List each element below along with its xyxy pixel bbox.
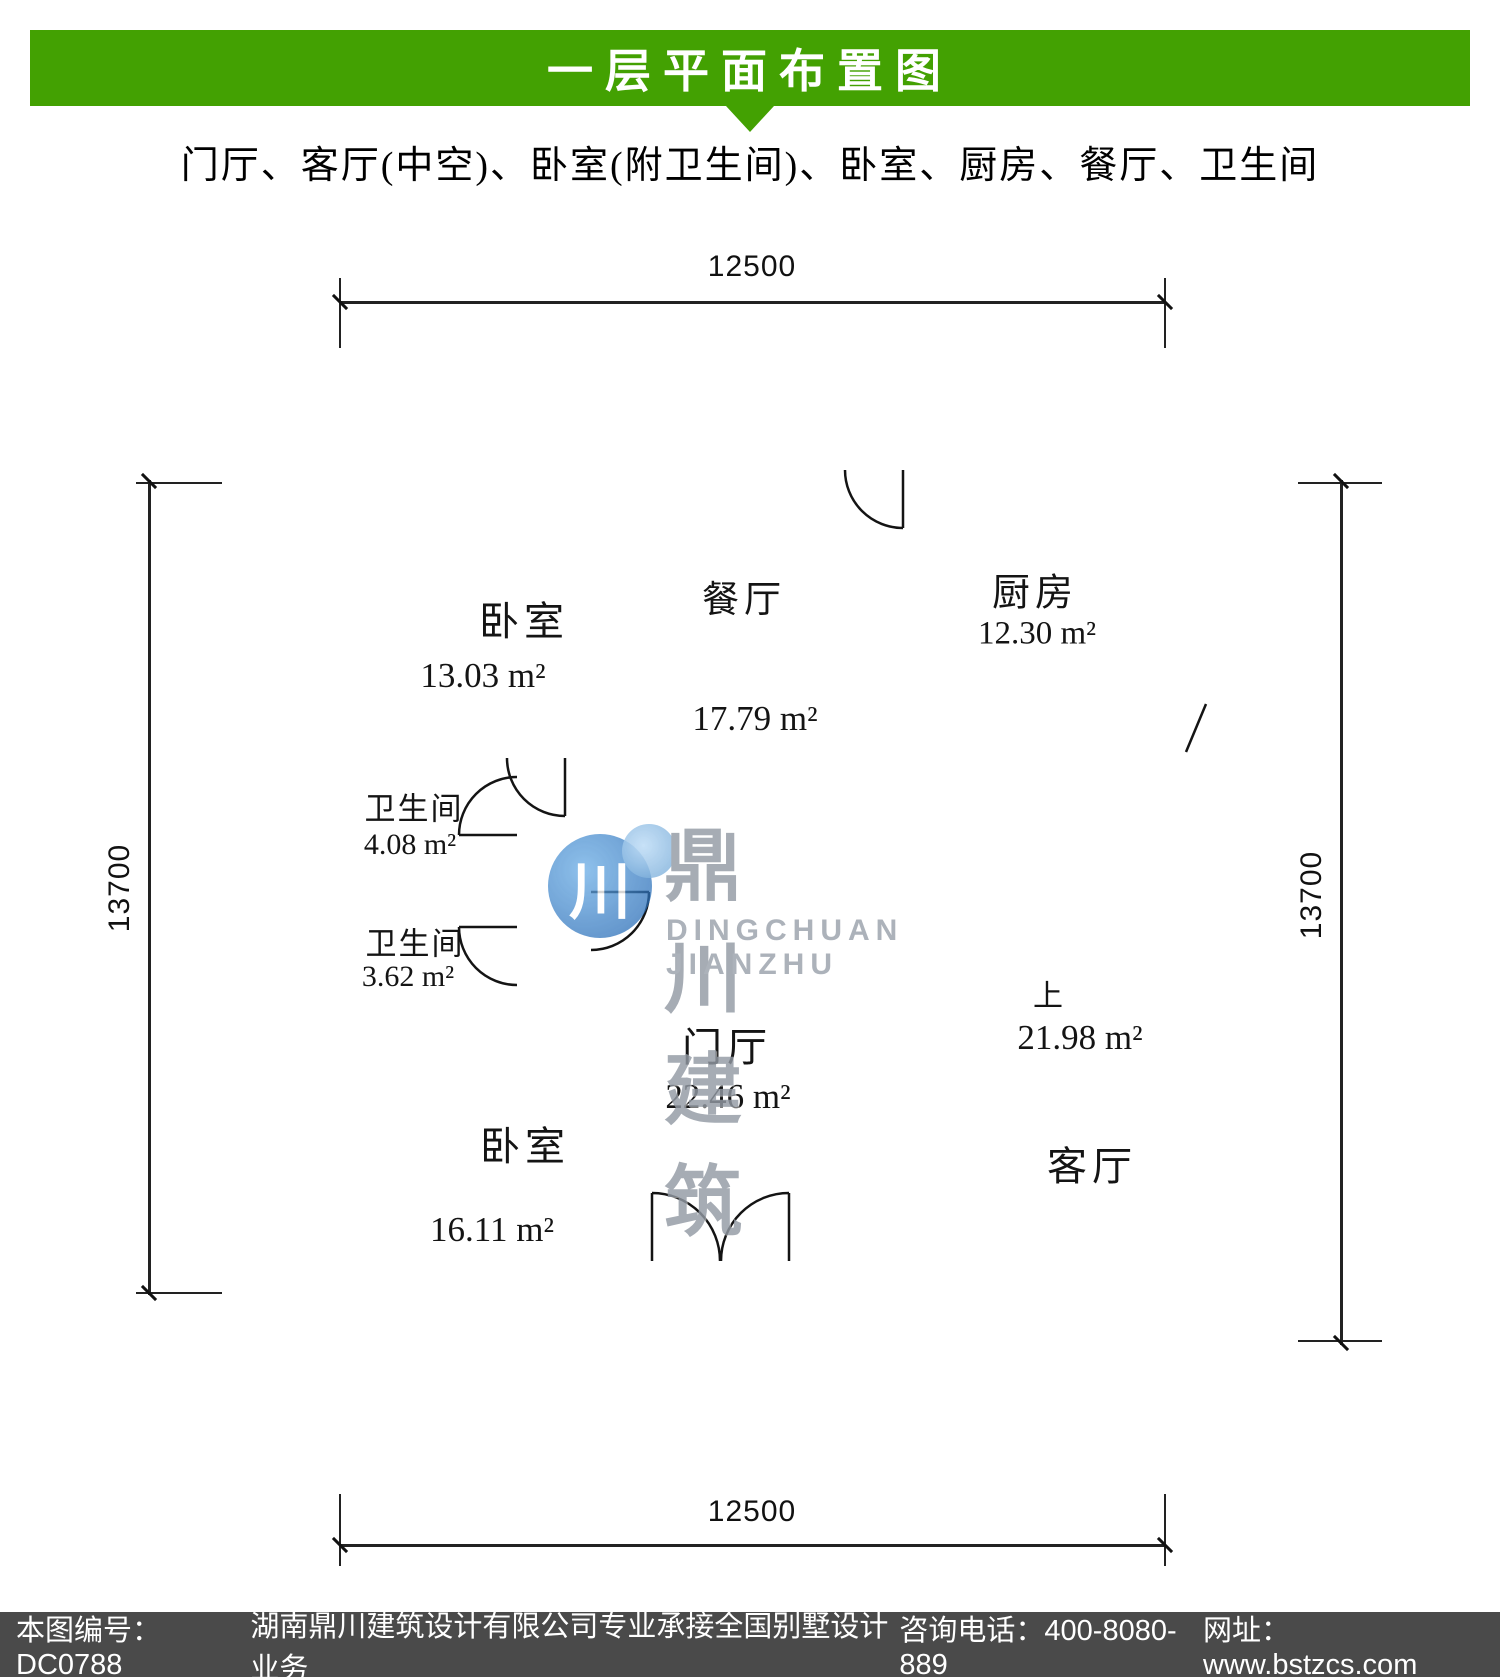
watermark-en-text: DINGCHUAN JIANZHU — [666, 914, 903, 982]
dim-left-value: 13700 — [103, 844, 137, 932]
bath2-area: 3.62 m² — [362, 960, 454, 994]
bedroom1-area: 13.03 m² — [420, 656, 545, 696]
dim-bottom-value: 12500 — [708, 1495, 796, 1529]
footer-phone: 咨询电话：400-8080-889 — [899, 1607, 1203, 1677]
floor-plan-page: 一层平面布置图 门厅、客厅(中空)、卧室(附卫生间)、卧室、厨房、餐厅、卫生间 … — [0, 0, 1500, 1677]
sparkle-icon: ✦ — [538, 826, 555, 851]
dim-ext — [1164, 1494, 1166, 1566]
dining-area: 17.79 m² — [692, 699, 817, 739]
kitchen-label: 厨房 — [992, 562, 1078, 617]
kitchen-area: 12.30 m² — [978, 616, 1096, 653]
kitchen-side-door-leaf — [1186, 704, 1206, 752]
bedroom2-area: 16.11 m² — [430, 1210, 554, 1250]
dim-right-value: 13700 — [1295, 851, 1329, 939]
footer-bar: 本图编号：DC0788 湖南鼎川建筑设计有限公司专业承接全国别墅设计业务 咨询电… — [0, 1612, 1500, 1677]
bedroom1-label: 卧室 — [479, 589, 569, 647]
living-area: 21.98 m² — [1017, 1018, 1142, 1058]
bedroom2-label: 卧室 — [480, 1114, 570, 1172]
dim-line-left — [148, 480, 151, 1295]
footer-company: 湖南鼎川建筑设计有限公司专业承接全国别墅设计业务 — [250, 1603, 899, 1677]
bath2-door-arc — [459, 927, 517, 985]
watermark-cn-text: 鼎川建筑 — [664, 804, 744, 1252]
stairs-up-label: 上 — [1033, 971, 1063, 1015]
living-label: 客厅 — [1047, 1134, 1137, 1192]
dim-ext — [339, 1494, 341, 1566]
dim-line-top — [340, 301, 1165, 304]
dim-line-right — [1340, 480, 1343, 1345]
dim-ext — [339, 278, 341, 348]
dim-top-value: 12500 — [708, 250, 796, 284]
porch-door-arc — [845, 470, 903, 528]
bath1-label: 卫生间 — [365, 784, 464, 829]
dim-line-bottom — [340, 1544, 1165, 1547]
bath1-door-arc — [459, 777, 517, 835]
bath1-area: 4.08 m² — [364, 828, 456, 862]
dining-label: 餐厅 — [702, 569, 786, 623]
footer-drawing-code: 本图编号：DC0788 — [16, 1607, 250, 1677]
bath2-label: 卫生间 — [366, 919, 465, 964]
footer-website: 网址：www.bstzcs.com — [1203, 1607, 1484, 1677]
dim-ext — [1164, 278, 1166, 348]
bedroom1-door-arc — [507, 758, 565, 816]
